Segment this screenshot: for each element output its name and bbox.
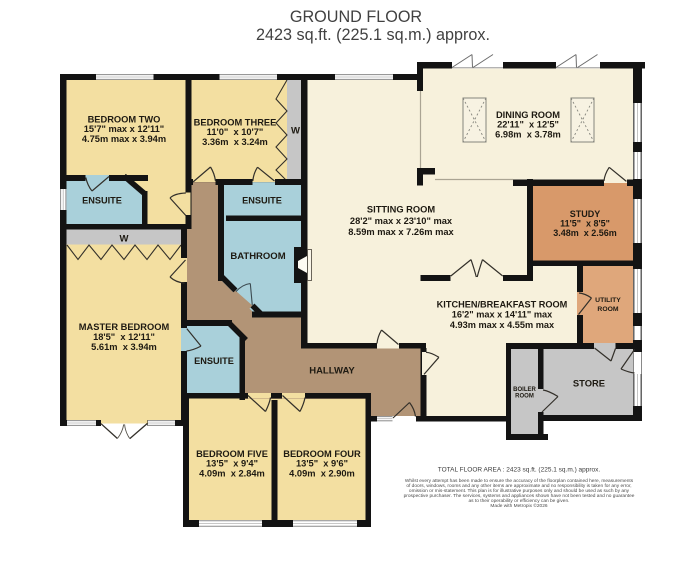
svg-text:W: W bbox=[120, 234, 129, 245]
svg-text:ENSUITE: ENSUITE bbox=[82, 196, 122, 206]
svg-text:TOTAL FLOOR AREA : 2423 sq.ft.: TOTAL FLOOR AREA : 2423 sq.ft. (225.1 sq… bbox=[438, 467, 601, 474]
svg-text:GROUND FLOOR: GROUND FLOOR bbox=[290, 8, 422, 26]
svg-text:BEDROOM TWO15'7" max x 12'11"4: BEDROOM TWO15'7" max x 12'11"4.75m max x… bbox=[82, 115, 166, 144]
svg-text:W: W bbox=[291, 126, 300, 137]
svg-text:HALLWAY: HALLWAY bbox=[309, 366, 355, 377]
svg-text:STORE: STORE bbox=[573, 378, 605, 389]
svg-text:BOILERROOM: BOILERROOM bbox=[513, 387, 536, 400]
svg-text:BATHROOM: BATHROOM bbox=[230, 251, 285, 262]
svg-text:ENSUITE: ENSUITE bbox=[242, 196, 282, 206]
svg-text:2423 sq.ft. (225.1 sq.m.) appr: 2423 sq.ft. (225.1 sq.m.) approx. bbox=[256, 26, 490, 44]
svg-text:KITCHEN/BREAKFAST ROOM16'2" ma: KITCHEN/BREAKFAST ROOM16'2" max x 14'11"… bbox=[437, 300, 568, 330]
svg-text:ENSUITE: ENSUITE bbox=[194, 356, 234, 366]
svg-text:BEDROOM FIVE13'5" x 9'4"4.09m: BEDROOM FIVE13'5" x 9'4"4.09m x 2.84m bbox=[196, 449, 268, 478]
svg-text:DINING ROOM22'11" x 12'5"6.98: DINING ROOM22'11" x 12'5"6.98m x 3.78m bbox=[495, 110, 561, 139]
